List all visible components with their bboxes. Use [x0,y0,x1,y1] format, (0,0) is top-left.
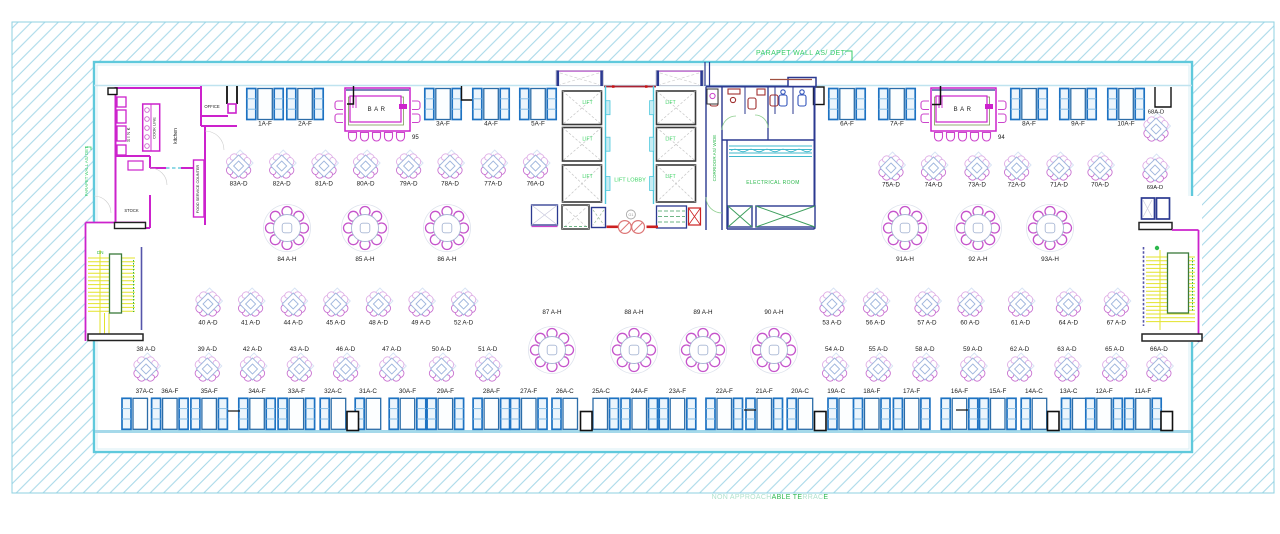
svg-text:72A-D: 72A-D [1008,182,1026,189]
svg-text:10A-F: 10A-F [1117,121,1134,128]
svg-text:12A-F: 12A-F [1096,388,1113,395]
svg-text:33A-F: 33A-F [288,388,305,395]
svg-text:28A-F: 28A-F [483,388,500,395]
svg-text:52 A-D: 52 A-D [454,320,474,327]
svg-text:78A-D: 78A-D [441,181,459,188]
svg-text:DN: DN [97,250,104,255]
svg-text:LIFT: LIFT [582,174,592,180]
svg-text:58 A-D: 58 A-D [915,346,935,353]
svg-text:63 A-D: 63 A-D [1057,346,1077,353]
svg-text:CORRIDOR AS/ WIDE: CORRIDOR AS/ WIDE [712,135,717,182]
svg-text:9A-F: 9A-F [1071,121,1085,128]
svg-text:54 A-D: 54 A-D [825,346,845,353]
svg-text:16A-F: 16A-F [951,388,968,395]
svg-text:79A-D: 79A-D [400,181,418,188]
svg-text:ELECTRICAL ROOM: ELECTRICAL ROOM [746,180,800,186]
svg-text:19A-C: 19A-C [827,388,845,395]
svg-text:2A-F: 2A-F [298,121,312,128]
svg-text:90 A-H: 90 A-H [764,309,784,316]
svg-text:40 A-D: 40 A-D [198,320,218,327]
svg-text:50 A-D: 50 A-D [432,346,452,353]
svg-text:41 A-D: 41 A-D [241,320,261,327]
svg-text:LIFT: LIFT [582,137,592,143]
svg-text:39 A-D: 39 A-D [198,346,218,353]
svg-text:kitchen: kitchen [173,128,179,144]
svg-text:74A-D: 74A-D [925,182,943,189]
svg-text:SINK: SINK [126,126,131,142]
svg-text:80A-D: 80A-D [357,181,375,188]
svg-text:38 A-D: 38 A-D [136,346,156,353]
svg-text:67 A-D: 67 A-D [1107,320,1127,327]
svg-text:24A-F: 24A-F [631,388,648,395]
svg-text:22A-F: 22A-F [716,388,733,395]
svg-text:OFFICE: OFFICE [204,104,220,109]
svg-text:25A-C: 25A-C [592,388,610,395]
svg-text:66A-D: 66A-D [1150,346,1168,353]
svg-text:37A-C: 37A-C [136,388,154,395]
svg-text:PARAPET WALL AS/ DET.: PARAPET WALL AS/ DET. [756,50,847,57]
svg-text:55 A-D: 55 A-D [869,346,889,353]
svg-text:LIFT: LIFT [582,100,592,106]
svg-text:92 A-H: 92 A-H [968,256,988,263]
svg-text:91A-H: 91A-H [896,256,914,263]
svg-text:64 A-D: 64 A-D [1059,320,1079,327]
svg-text:13A-C: 13A-C [1060,388,1078,395]
svg-text:FOOD SERVICE COUNTER: FOOD SERVICE COUNTER [196,165,200,214]
svg-text:BAR: BAR [954,107,974,113]
svg-text:47 A-D: 47 A-D [382,346,402,353]
svg-text:59 A-D: 59 A-D [963,346,983,353]
svg-text:15A-F: 15A-F [989,388,1006,395]
svg-text:8A-F: 8A-F [1022,121,1036,128]
svg-text:95: 95 [412,135,419,141]
svg-text:45 A-D: 45 A-D [326,320,346,327]
svg-text:29A-F: 29A-F [437,388,454,395]
svg-text:77A-D: 77A-D [484,181,502,188]
svg-text:30A-F: 30A-F [399,388,416,395]
svg-text:17A-F: 17A-F [903,388,920,395]
svg-text:27A-F: 27A-F [520,388,537,395]
svg-text:57 A-D: 57 A-D [917,320,937,327]
svg-text:5A-F: 5A-F [531,121,545,128]
svg-text:NON APPROACHABLE TERRACE: NON APPROACHABLE TERRACE [712,494,829,501]
svg-text:LIFT: LIFT [665,137,675,143]
svg-text:32A-C: 32A-C [324,388,342,395]
svg-text:31A-C: 31A-C [359,388,377,395]
svg-text:61 A-D: 61 A-D [1011,320,1031,327]
svg-text:68A-D: 68A-D [1148,110,1164,116]
svg-text:84 A-H: 84 A-H [277,256,297,263]
svg-text:86 A-H: 86 A-H [437,256,457,263]
svg-text:71A-D: 71A-D [1050,182,1068,189]
svg-text:BAR: BAR [368,107,388,113]
svg-text:87 A-H: 87 A-H [542,309,562,316]
svg-text:53 A-D: 53 A-D [822,320,842,327]
svg-text:7A-F: 7A-F [890,121,904,128]
svg-text:94: 94 [998,135,1005,141]
svg-text:89 A-H: 89 A-H [693,309,713,316]
svg-text:21A-F: 21A-F [756,388,773,395]
svg-text:42 A-D: 42 A-D [243,346,263,353]
svg-text:82A-D: 82A-D [273,181,291,188]
svg-text:46 A-D: 46 A-D [336,346,356,353]
svg-text:23A-F: 23A-F [669,388,686,395]
svg-text:43 A-D: 43 A-D [290,346,310,353]
svg-text:44 A-D: 44 A-D [284,320,304,327]
svg-text:11A-F: 11A-F [1135,388,1152,395]
svg-text:35A-F: 35A-F [201,388,218,395]
svg-text:93A-H: 93A-H [1041,256,1059,263]
svg-text:1A-F: 1A-F [258,121,272,128]
svg-text:85 A-H: 85 A-H [355,256,375,263]
svg-text:49 A-D: 49 A-D [411,320,431,327]
svg-text:56 A-D: 56 A-D [866,320,886,327]
svg-text:88 A-H: 88 A-H [624,309,644,316]
svg-text:PARAPET WALL AS/ DET.: PARAPET WALL AS/ DET. [84,146,89,197]
svg-text:75A-D: 75A-D [882,182,900,189]
svg-text:70A-D: 70A-D [1091,182,1109,189]
svg-text:48 A-D: 48 A-D [369,320,389,327]
svg-text:20A-C: 20A-C [791,388,809,395]
svg-text:G1: G1 [628,213,633,217]
svg-text:LIFT: LIFT [665,174,675,180]
svg-text:65 A-D: 65 A-D [1105,346,1125,353]
svg-text:STOCK: STOCK [124,208,139,213]
svg-text:73A-D: 73A-D [968,182,986,189]
svg-text:14A-C: 14A-C [1025,388,1043,395]
svg-text:LIFT LOBBY: LIFT LOBBY [614,178,646,184]
svg-text:76A-D: 76A-D [527,181,545,188]
svg-text:60 A-D: 60 A-D [960,320,980,327]
svg-text:36A-F: 36A-F [161,388,178,395]
svg-text:34A-F: 34A-F [248,388,265,395]
svg-text:26A-C: 26A-C [556,388,574,395]
svg-text:51 A-D: 51 A-D [478,346,498,353]
svg-text:69A-D: 69A-D [1147,185,1163,191]
svg-text:LIFT: LIFT [665,100,675,106]
svg-text:81A-D: 81A-D [315,181,333,188]
svg-text:62 A-D: 62 A-D [1010,346,1030,353]
svg-text:18A-F: 18A-F [863,388,880,395]
svg-text:83A-D: 83A-D [230,181,248,188]
svg-text:COOK LINE: COOK LINE [152,117,157,139]
svg-text:3A-F: 3A-F [436,121,450,128]
svg-text:6A-F: 6A-F [840,121,854,128]
svg-text:4A-F: 4A-F [484,121,498,128]
